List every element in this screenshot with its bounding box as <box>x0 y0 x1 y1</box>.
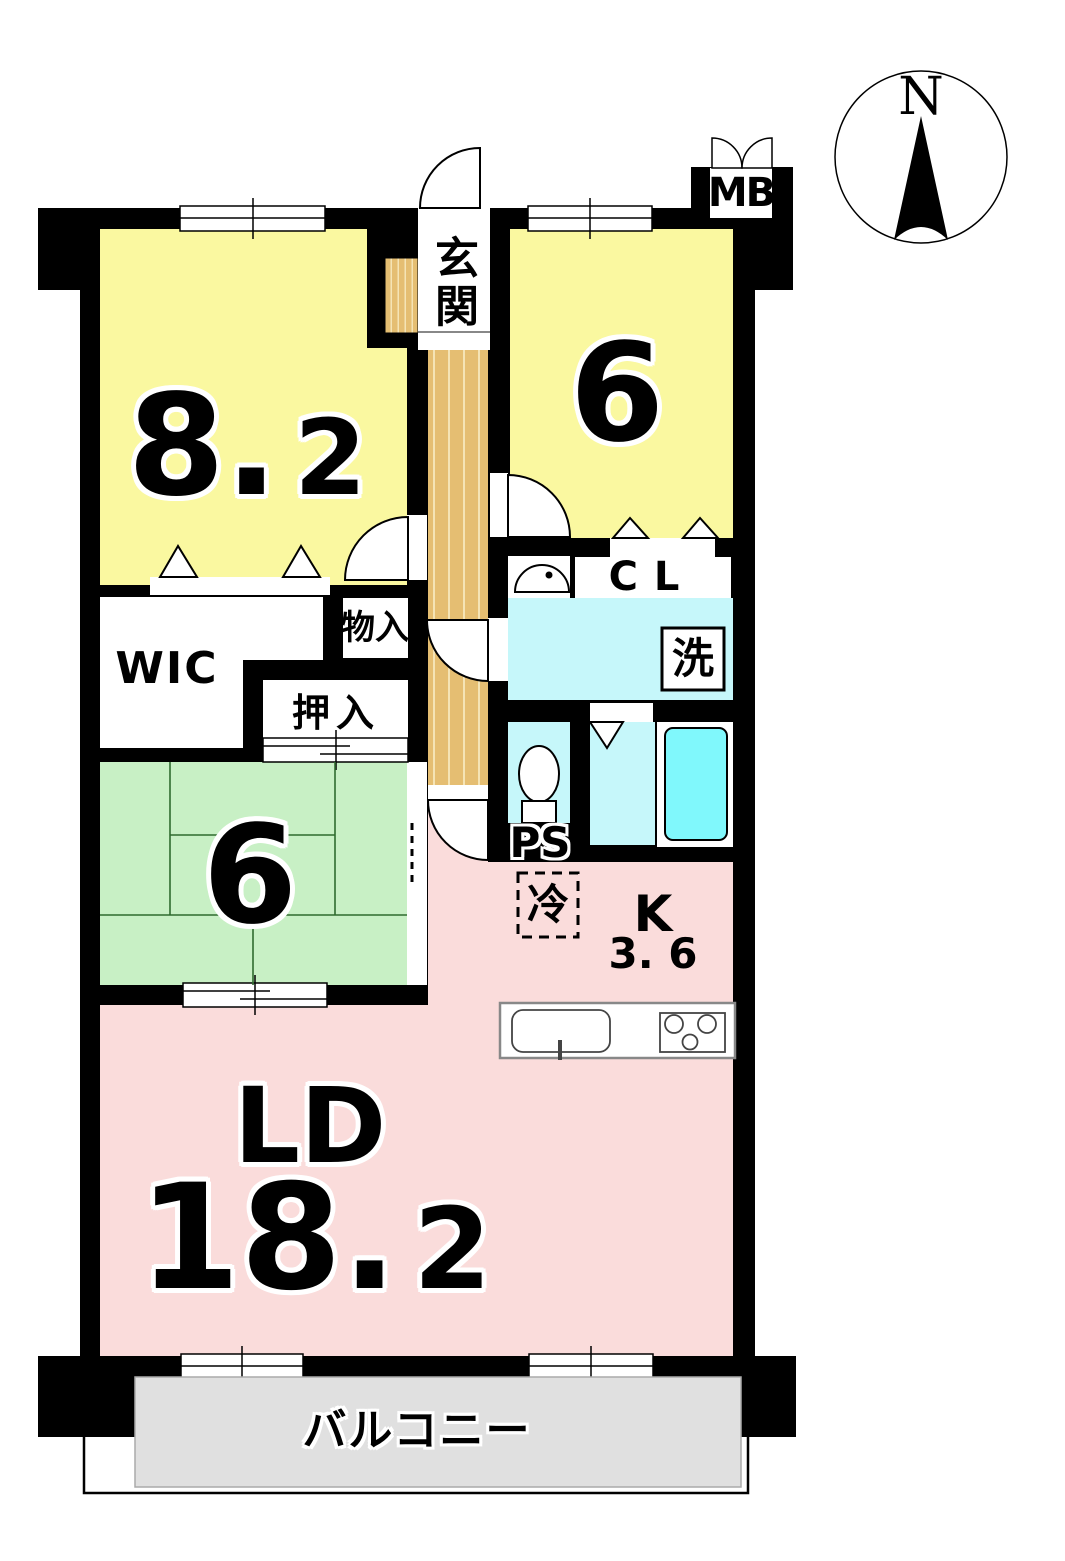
floor-plan-page: N MB 玄関 8. 2 6 WIC 物入 押入 CL 洗 6 PS 冷 K 3… <box>0 0 1065 1561</box>
bathroom-floor <box>590 722 655 845</box>
wic-label: WIC <box>115 647 218 691</box>
toilet-icon <box>519 746 559 802</box>
storage-label: 物入 <box>341 611 409 645</box>
bedroom-6-size-label: 6 <box>570 326 665 462</box>
bathtub-icon <box>665 728 727 840</box>
oshiire-label: 押入 <box>292 694 380 732</box>
living-size-label: 18. 2 <box>139 1165 492 1311</box>
entrance-door-swing <box>420 148 480 208</box>
balcony-label: バルコニー <box>302 1409 531 1453</box>
fridge-label: 冷 <box>527 884 569 926</box>
floor-plan-drawing <box>0 0 1065 1561</box>
genkan-step-edge <box>418 332 490 350</box>
genkan-step <box>385 258 418 333</box>
bath-entry-strip <box>590 703 653 722</box>
corner-block-bottom-left <box>38 1356 135 1437</box>
kitchen-size-label: 3. 6 <box>608 933 697 975</box>
compass-north-label: N <box>898 71 944 123</box>
pipe-space-label: PS <box>509 822 570 864</box>
meter-box-door-icon <box>742 138 772 168</box>
tatami-size-label: 6 <box>203 808 298 944</box>
bedroom-82-size-label: 8. 2 <box>128 377 367 517</box>
bedroom82-closet-front <box>150 577 330 595</box>
kitchen-counter <box>500 1003 735 1060</box>
entrance-opening <box>418 208 490 229</box>
meter-box-label: MB <box>708 173 774 213</box>
tatami-sliding-track <box>407 762 427 985</box>
entrance-label: 玄関 <box>430 235 474 331</box>
bedroom-82-floor <box>100 229 367 348</box>
corridor <box>428 350 488 785</box>
washer-label: 洗 <box>672 638 714 680</box>
meter-box-door-icon <box>712 138 742 168</box>
washbasin-faucet-icon <box>546 572 553 579</box>
closet-label: CL <box>609 557 696 597</box>
